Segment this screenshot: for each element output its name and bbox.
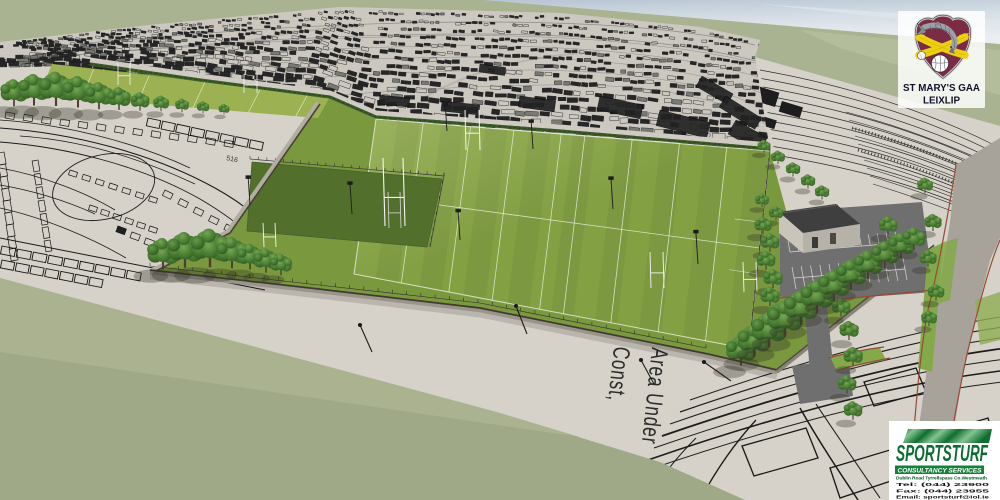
svg-text:ST MARY'S GAA: ST MARY'S GAA [903, 83, 980, 94]
svg-text:LEIXLIP: LEIXLIP [923, 96, 960, 107]
svg-text:CONSULTANCY SERVICES: CONSULTANCY SERVICES [898, 468, 983, 475]
svg-text:Tel: (044) 23900: Tel: (044) 23900 [896, 482, 990, 488]
svg-text:SPORTSTURF: SPORTSTURF [896, 440, 989, 466]
svg-text:Dublin Road Tyrrellspass Co.W: Dublin Road Tyrrellspass Co.Westmeath [896, 476, 987, 482]
svg-text:Email: sportsturf@iol.ie: Email: sportsturf@iol.ie [896, 495, 990, 500]
svg-text:Fax: (044) 23955: Fax: (044) 23955 [896, 488, 990, 494]
